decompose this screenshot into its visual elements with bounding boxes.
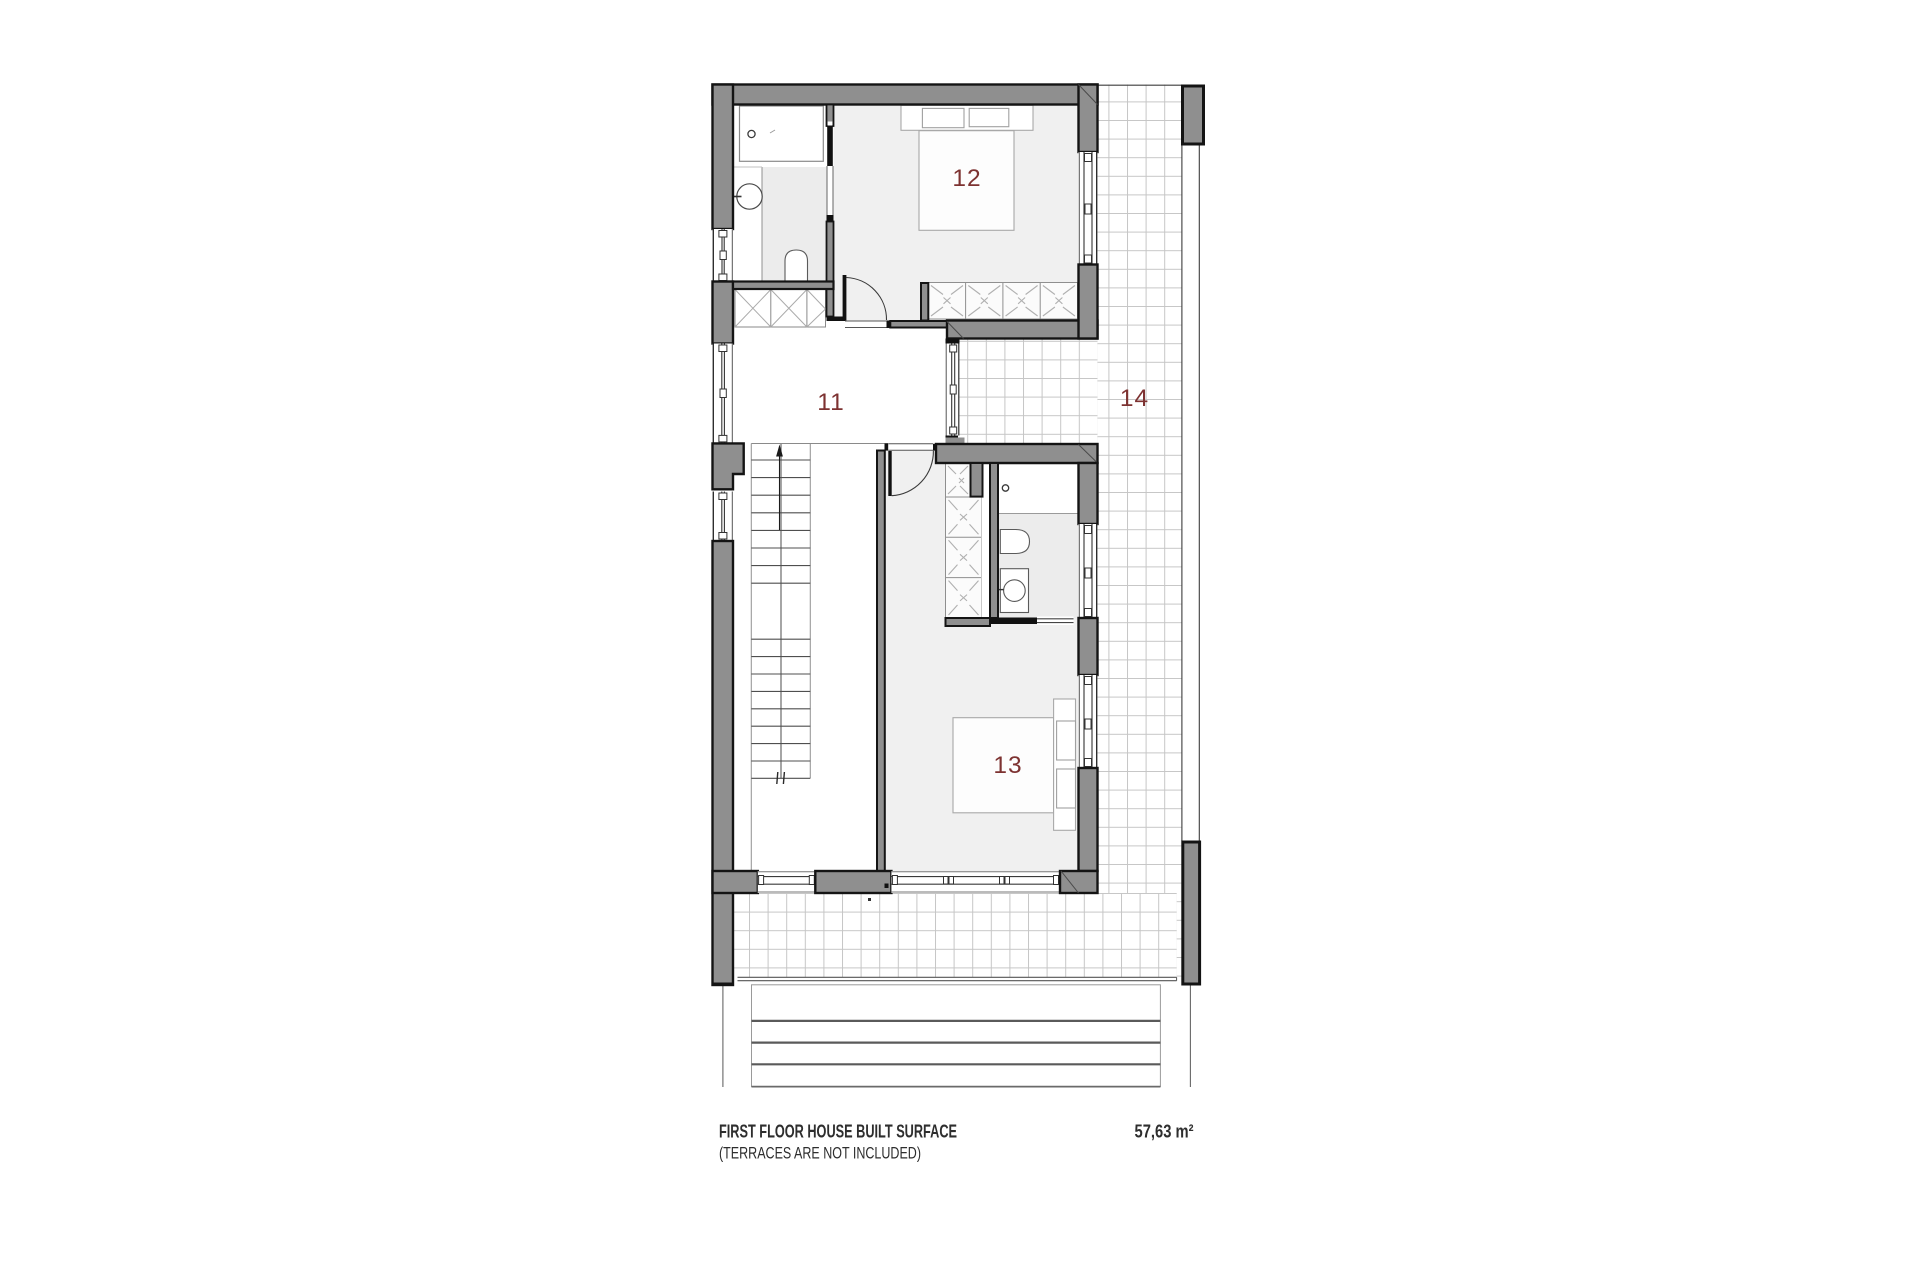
- svg-text:12: 12: [952, 165, 981, 192]
- svg-text:57,63 m²: 57,63 m²: [1135, 1121, 1194, 1142]
- svg-text:13: 13: [993, 752, 1022, 779]
- svg-text:(TERRACES ARE NOT INCLUDED): (TERRACES ARE NOT INCLUDED): [719, 1145, 921, 1163]
- svg-text:11: 11: [817, 389, 844, 416]
- svg-text:FIRST FLOOR HOUSE BUILT SURFAC: FIRST FLOOR HOUSE BUILT SURFACE: [719, 1121, 957, 1142]
- svg-text:14: 14: [1120, 385, 1149, 412]
